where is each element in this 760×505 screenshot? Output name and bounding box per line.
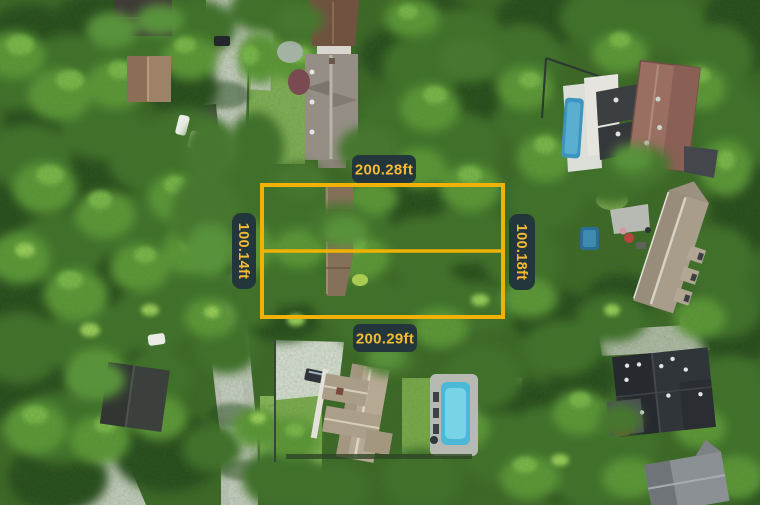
hedge-line bbox=[286, 454, 472, 459]
red-umbrella bbox=[624, 233, 634, 243]
aerial-photo: 200.28ft 200.29ft 100.14ft 100.18ft bbox=[0, 0, 760, 505]
dimension-label-right: 100.18ft bbox=[513, 224, 529, 280]
red-maple-tree bbox=[288, 69, 310, 95]
dimension-label-top: 200.28ft bbox=[355, 161, 413, 178]
aerial-lot-photo: 200.28ft 200.29ft 100.14ft 100.18ft bbox=[0, 0, 760, 505]
lime-bush bbox=[352, 274, 368, 286]
silver-tree bbox=[277, 41, 303, 63]
dimension-label-left: 100.14ft bbox=[235, 223, 251, 279]
dimension-label-bottom: 200.29ft bbox=[356, 330, 414, 347]
